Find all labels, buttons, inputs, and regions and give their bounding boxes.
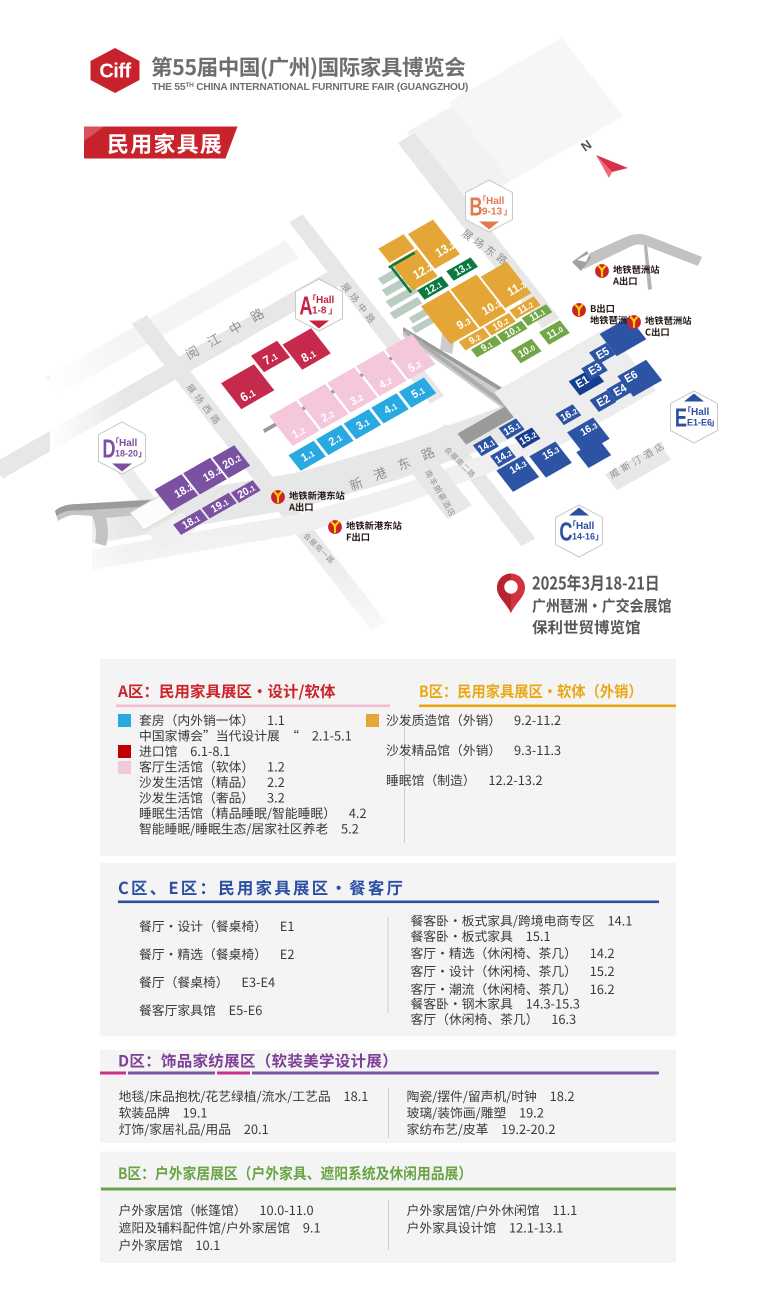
svg-text:Hall: Hall [576,521,595,532]
svg-text:C: C [559,517,572,546]
svg-text:Hall: Hall [486,196,505,207]
svg-text:1-8: 1-8 [312,306,327,317]
svg-text:Hall: Hall [691,407,710,418]
svg-text:Hall: Hall [119,438,138,449]
svg-text:Ciff: Ciff [99,61,131,83]
svg-text:THE 55TH CHINA INTERNATIONAL F: THE 55TH CHINA INTERNATIONAL FURNITURE F… [152,82,468,93]
svg-text:E: E [675,403,687,432]
svg-text:18-20: 18-20 [115,449,138,459]
svg-text:9-13: 9-13 [482,207,502,218]
svg-text:Hall: Hall [316,295,335,306]
svg-text:D: D [102,434,115,463]
svg-text:14-16: 14-16 [572,532,595,542]
svg-text:A: A [299,291,312,320]
svg-text:E1-E6: E1-E6 [687,418,712,428]
svg-text:B: B [469,192,482,221]
